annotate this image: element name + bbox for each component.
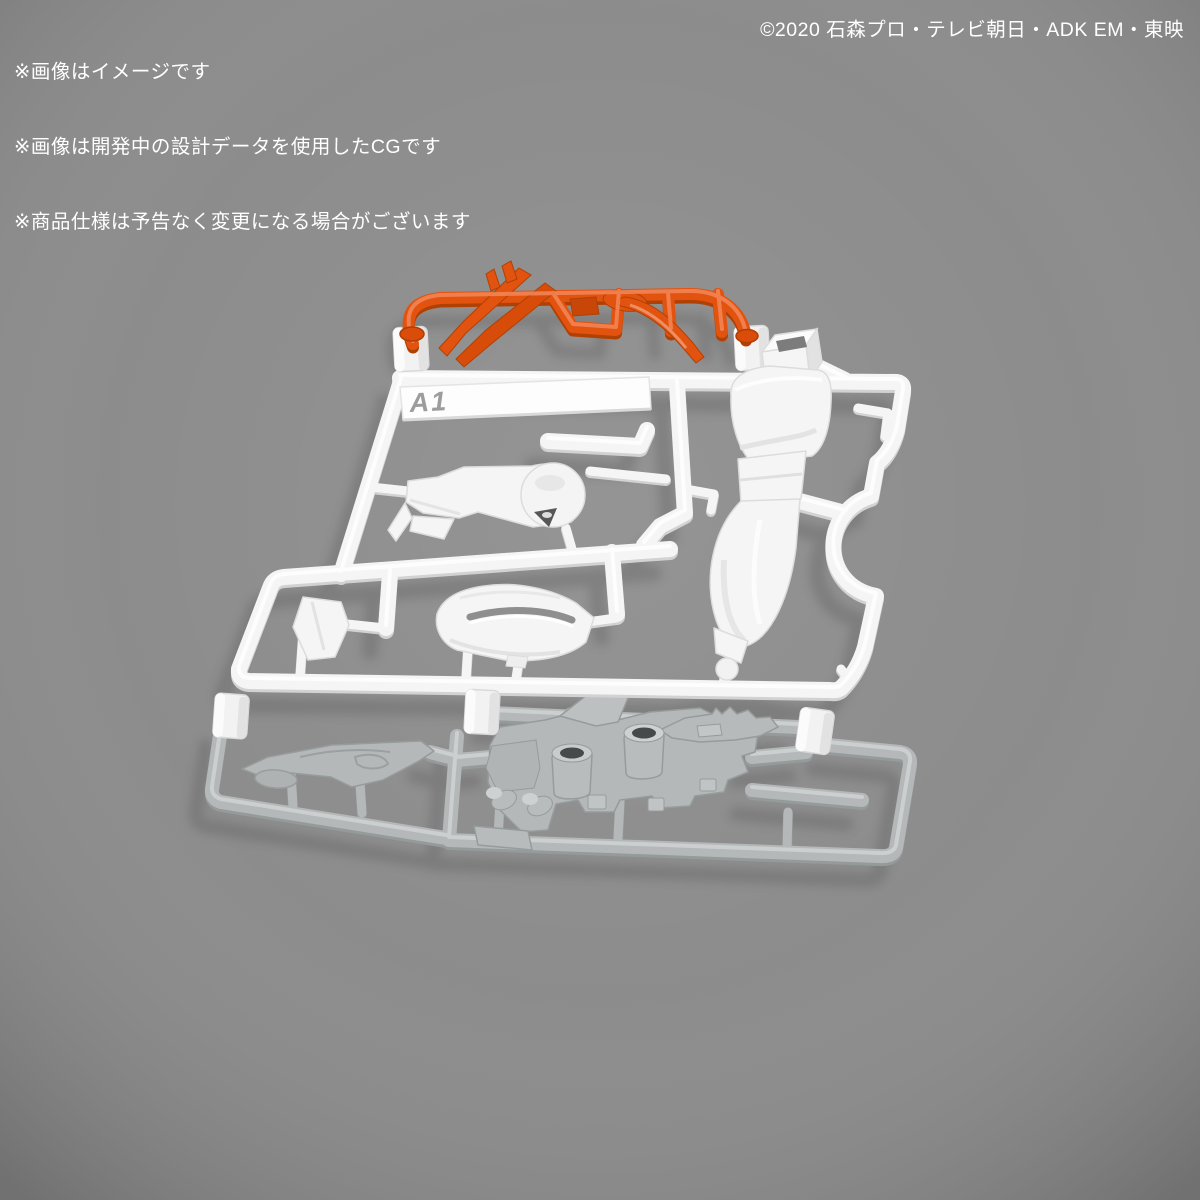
sprue-connector-post bbox=[795, 707, 835, 755]
product-image: A1 bbox=[0, 0, 1200, 1200]
sprue-connector-post bbox=[464, 689, 500, 735]
disclaimer-line: ※画像はイメージです bbox=[14, 60, 471, 85]
disclaimer-line: ※画像は開発中の設計データを使用したCGです bbox=[14, 135, 471, 160]
disclaimer-notes: ※画像はイメージです ※画像は開発中の設計データを使用したCGです ※商品仕様は… bbox=[14, 10, 471, 285]
gate-cap bbox=[400, 327, 424, 341]
disclaimer-line: ※商品仕様は予告なく変更になる場合がございます bbox=[14, 210, 471, 235]
runner-label-text: A1 bbox=[408, 386, 449, 418]
gate-cap bbox=[736, 330, 758, 343]
sprue-connector-post bbox=[213, 693, 250, 739]
copyright-text: ©2020 石森プロ・テレビ朝日・ADK EM・東映 bbox=[760, 13, 1184, 42]
